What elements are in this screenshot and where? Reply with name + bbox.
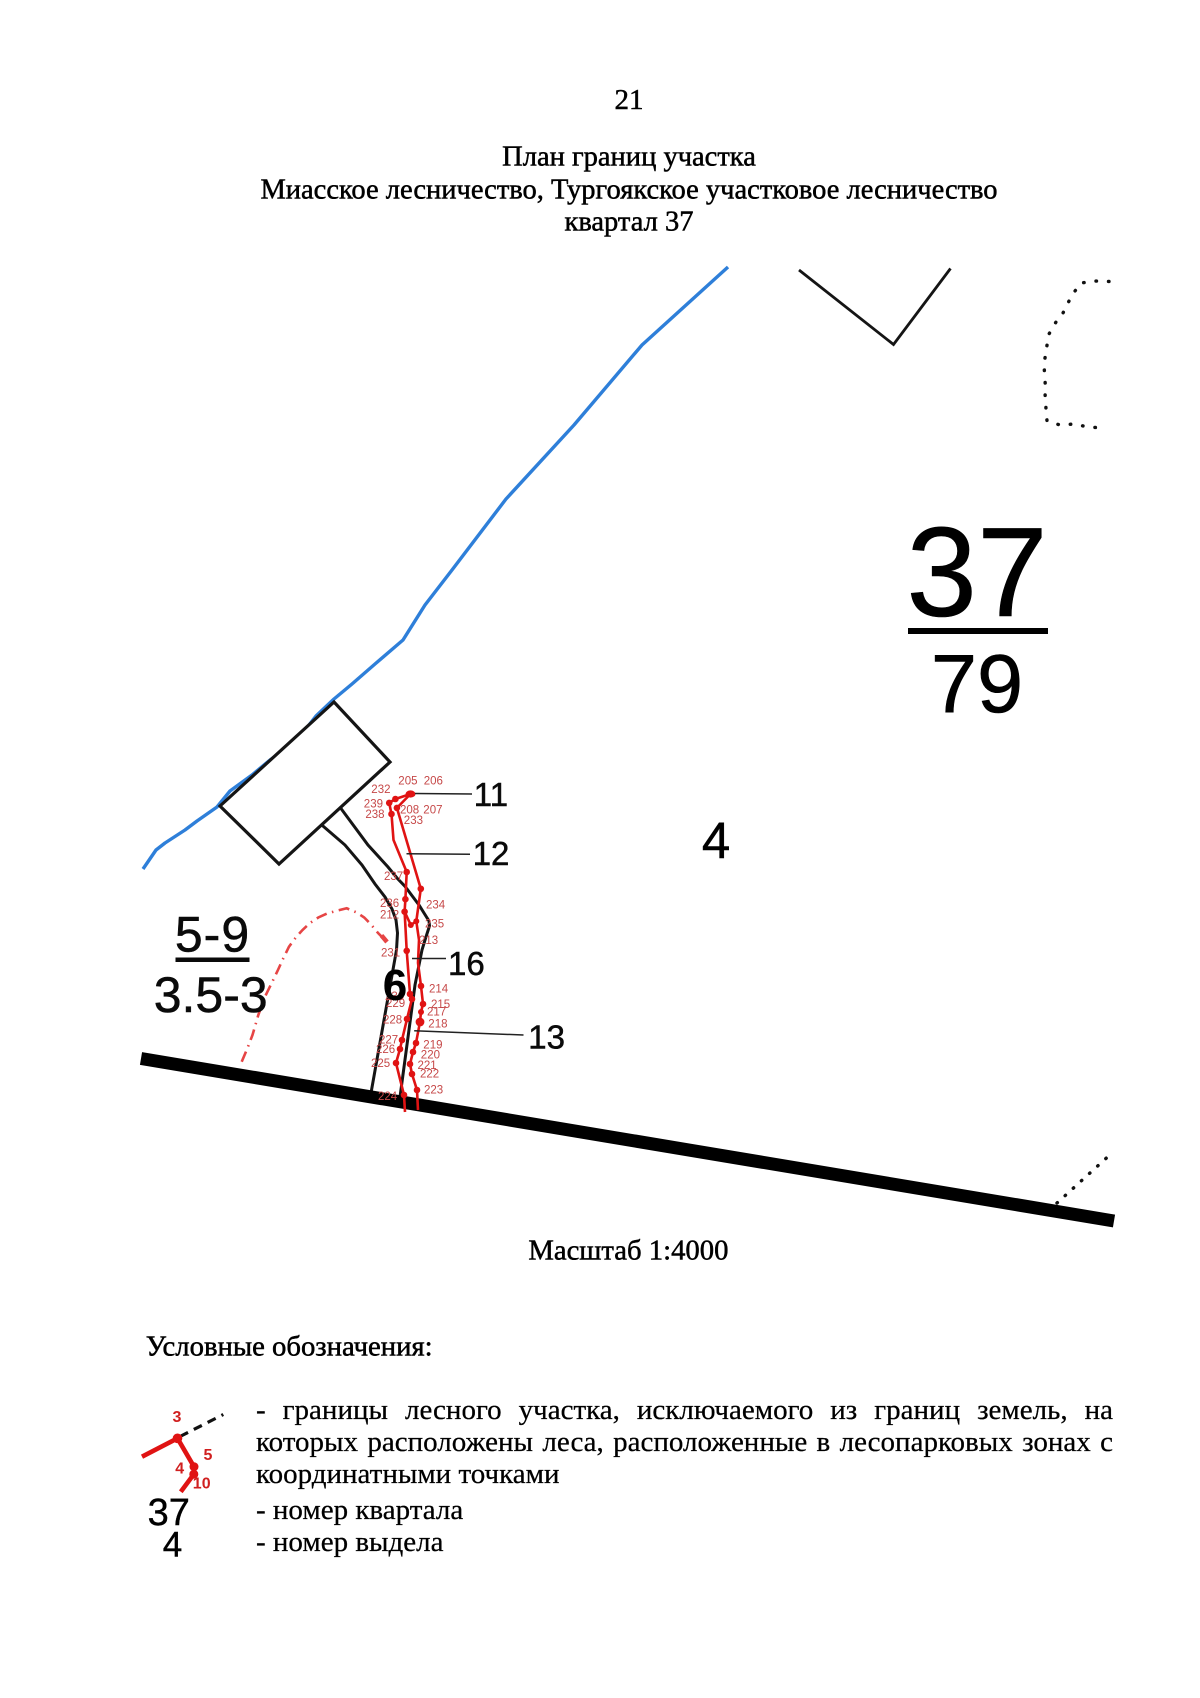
svg-text:223: 223 — [424, 1085, 443, 1097]
svg-text:квартал 37: квартал 37 — [564, 207, 693, 238]
svg-text:12: 12 — [473, 835, 510, 872]
svg-text:Масштаб 1:4000: Масштаб 1:4000 — [528, 1235, 728, 1267]
svg-text:214: 214 — [429, 984, 449, 996]
svg-text:213: 213 — [419, 935, 438, 947]
svg-text:231: 231 — [381, 948, 400, 960]
svg-text:235: 235 — [425, 919, 444, 931]
svg-text:3.5-3: 3.5-3 — [154, 967, 268, 1023]
svg-text:212: 212 — [380, 910, 399, 922]
svg-text:217: 217 — [427, 1007, 446, 1019]
svg-text:13: 13 — [528, 1018, 565, 1055]
svg-text:205: 205 — [398, 775, 417, 787]
svg-text:Миасское лесничество, Тургоякс: Миасское лесничество, Тургоякское участк… — [260, 174, 997, 205]
svg-text:План границ участка: План границ участка — [502, 142, 756, 173]
svg-text:234: 234 — [426, 900, 446, 912]
svg-text:218: 218 — [428, 1019, 447, 1031]
svg-text:222: 222 — [420, 1069, 439, 1081]
svg-text:6: 6 — [383, 961, 407, 1010]
svg-text:238: 238 — [365, 809, 384, 821]
svg-text:11: 11 — [474, 776, 508, 813]
svg-text:4: 4 — [163, 1526, 182, 1565]
svg-text:21: 21 — [615, 84, 644, 116]
svg-text:232: 232 — [371, 784, 390, 796]
svg-text:228: 228 — [383, 1015, 402, 1027]
svg-text:5: 5 — [204, 1447, 213, 1464]
svg-text:16: 16 — [448, 945, 485, 982]
svg-text:37: 37 — [906, 501, 1047, 643]
svg-text:237: 237 — [384, 871, 403, 883]
svg-text:226: 226 — [376, 1044, 395, 1056]
svg-text:4: 4 — [175, 1460, 184, 1477]
svg-text:224: 224 — [378, 1091, 398, 1103]
svg-text:236: 236 — [380, 898, 399, 910]
svg-text:206: 206 — [424, 775, 443, 787]
svg-text:10: 10 — [193, 1475, 211, 1492]
svg-text:3: 3 — [173, 1409, 182, 1426]
svg-text:79: 79 — [931, 637, 1023, 730]
svg-text:225: 225 — [371, 1058, 390, 1070]
svg-text:207: 207 — [423, 804, 442, 816]
svg-text:Условные обозначения:: Условные обозначения: — [146, 1330, 433, 1362]
svg-text:233: 233 — [404, 815, 423, 827]
svg-text:4: 4 — [702, 812, 730, 869]
svg-text:5-9: 5-9 — [175, 906, 250, 962]
